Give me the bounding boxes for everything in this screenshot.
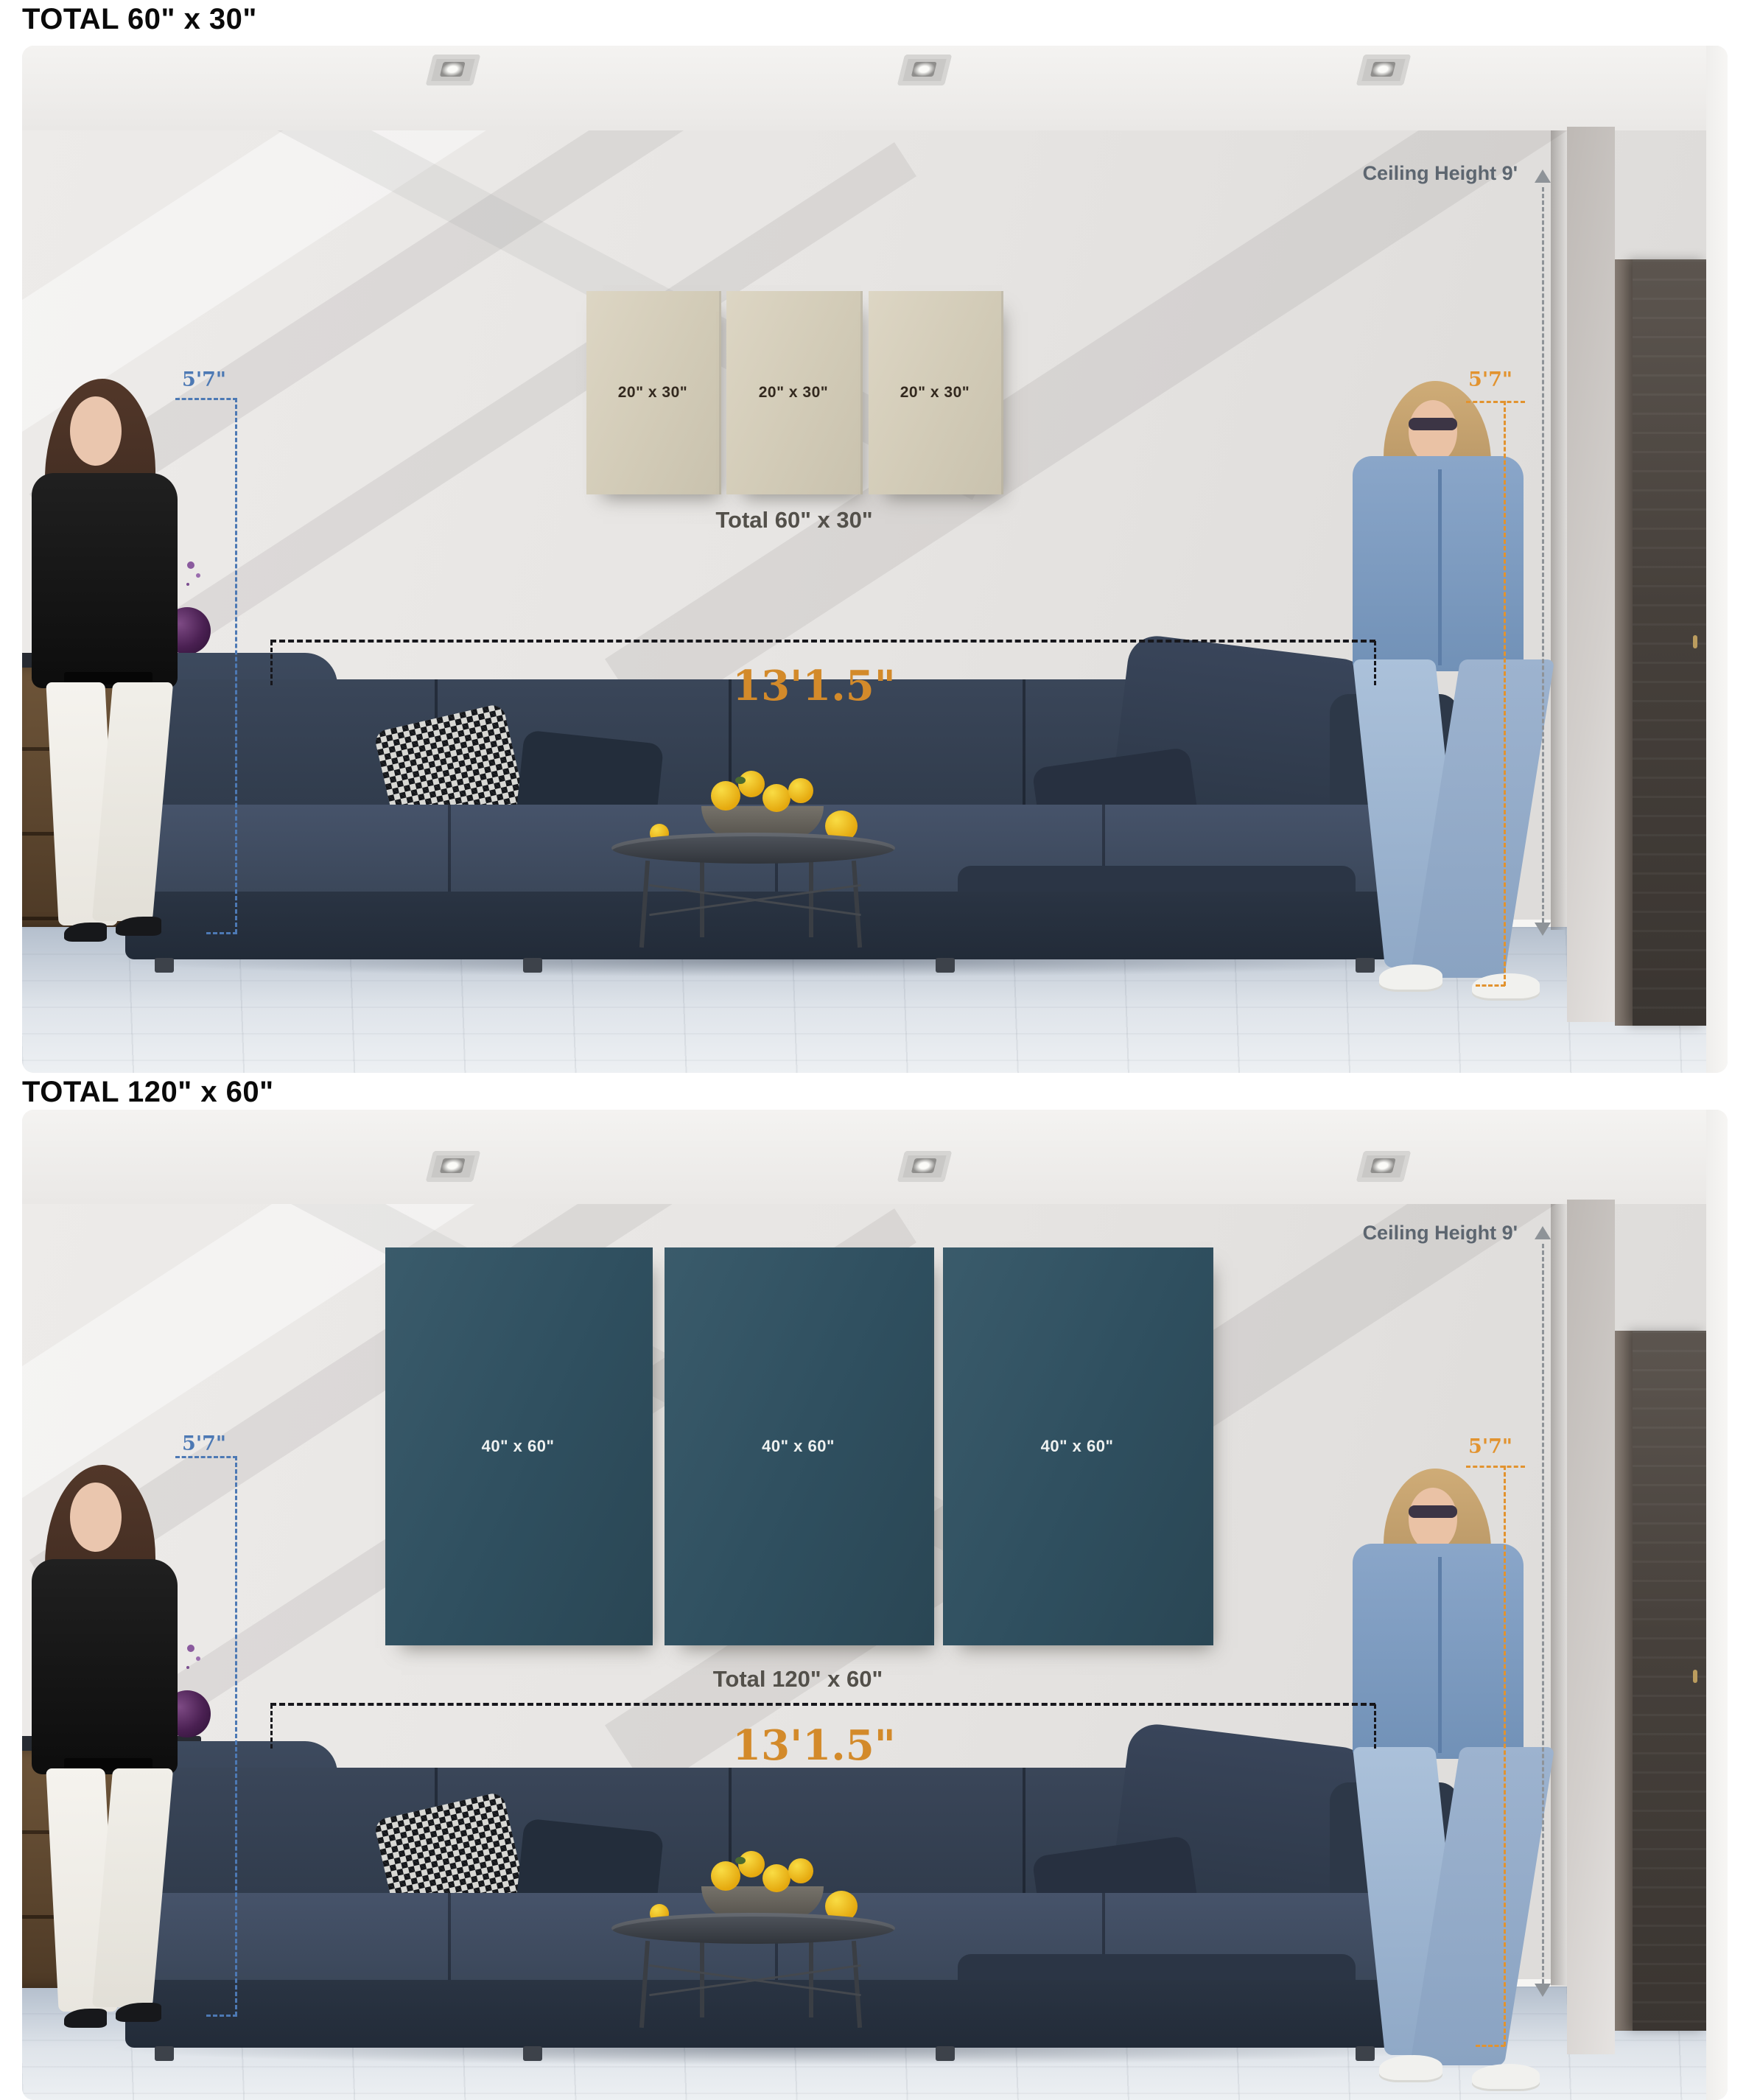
fruit	[738, 1851, 765, 1877]
left-person-shoe	[64, 923, 107, 942]
sofa-width-end-tick	[270, 1704, 273, 1749]
ceiling-height-line	[1542, 187, 1544, 923]
left-person	[26, 379, 195, 953]
sofa-width-line	[270, 1703, 1375, 1706]
canvas-panel: 40" x 60"	[665, 1247, 934, 1645]
hallway-outer-wall	[1706, 1110, 1728, 2100]
ceiling-light	[897, 1151, 952, 1182]
left-height-dash	[175, 398, 237, 400]
sofa-leg	[936, 958, 955, 973]
sofa-leg	[523, 958, 542, 973]
table-tray	[611, 833, 895, 864]
table-leg	[809, 1941, 813, 2017]
left-person-black-blouse	[32, 473, 178, 688]
ceiling-light	[426, 1151, 480, 1182]
ceiling-height-label: Ceiling Height 9'	[1326, 1222, 1518, 1245]
arrow-down-icon	[1535, 923, 1551, 936]
ceiling-light	[1356, 55, 1411, 85]
left-height-dash	[175, 1456, 237, 1458]
left-height-marker: 5'7"	[171, 1432, 237, 1455]
right-height-floor-tick	[1476, 2045, 1505, 2047]
sofa-leg	[523, 2046, 542, 2061]
table-leg	[639, 1941, 650, 2028]
table-leg	[852, 1941, 862, 2028]
canvas-panel: 20" x 30"	[726, 291, 863, 494]
right-person-denim-jacket	[1353, 1544, 1524, 1759]
fruit	[788, 1858, 813, 1883]
coffee-table	[611, 775, 895, 952]
table-leg	[639, 861, 650, 948]
left-person-face	[70, 396, 122, 466]
right-person	[1341, 381, 1554, 1000]
table-leg	[809, 861, 813, 937]
ceiling-height-label: Ceiling Height 9'	[1326, 162, 1518, 185]
table-leg	[700, 1941, 704, 2017]
arrow-up-icon	[1535, 1226, 1551, 1239]
section-title-60x30: TOTAL 60" x 30"	[22, 3, 257, 36]
table-leg	[700, 861, 704, 937]
sofa-width-label: 13'1.5"	[681, 662, 947, 710]
left-height-floor-tick	[206, 932, 237, 934]
ceiling	[22, 1110, 1728, 1205]
sunglasses	[1409, 1505, 1457, 1518]
ceiling-light	[897, 55, 952, 85]
ceiling-light	[426, 55, 480, 85]
fruit-leaf	[735, 1857, 746, 1864]
sunglasses	[1409, 418, 1457, 430]
arrow-down-icon	[1535, 1984, 1551, 1997]
left-height-line	[235, 398, 237, 934]
canvas-panel: 40" x 60"	[385, 1247, 653, 1645]
hallway-outer-wall	[1706, 46, 1728, 1073]
coffee-table	[611, 1855, 895, 2032]
right-height-line	[1504, 401, 1506, 986]
fruit	[738, 771, 765, 797]
ceiling	[22, 46, 1728, 131]
left-person	[26, 1465, 195, 2040]
canvas-size-label: 20" x 30"	[900, 384, 970, 402]
sofa-leg	[155, 2046, 174, 2061]
left-person-black-blouse	[32, 1559, 178, 1774]
canvas-panel: 20" x 30"	[869, 291, 1003, 494]
right-person-face	[1409, 400, 1457, 463]
right-height-marker: 5'7"	[1457, 368, 1524, 391]
table-leg	[852, 861, 862, 948]
canvas-panel: 40" x 60"	[943, 1247, 1213, 1645]
sofa-width-end-tick	[1374, 641, 1376, 685]
canvas-size-label: 40" x 60"	[482, 1437, 555, 1456]
room-scene-120x60: 40" x 60" 40" x 60" 40" x 60" Total 120"…	[22, 1110, 1728, 2100]
left-person-shoe	[116, 917, 161, 936]
table-tray	[611, 1913, 895, 1944]
fruit-leaf	[735, 777, 746, 784]
total-size-caption: Total 120" x 60"	[680, 1666, 916, 1693]
fruit	[711, 1861, 740, 1891]
sofa-width-label: 13'1.5"	[681, 1721, 947, 1770]
canvas-size-label: 20" x 30"	[618, 384, 687, 402]
arrow-up-icon	[1535, 169, 1551, 183]
right-person-sneaker	[1379, 965, 1442, 990]
left-height-floor-tick	[206, 2015, 237, 2017]
left-person-shoe	[116, 2003, 161, 2022]
total-size-caption: Total 60" x 30"	[676, 507, 912, 533]
right-person-sneaker	[1379, 2055, 1442, 2080]
right-height-marker: 5'7"	[1457, 1435, 1524, 1458]
right-person-denim-jacket	[1353, 456, 1524, 671]
sofa-width-end-tick	[270, 641, 273, 685]
right-height-floor-tick	[1476, 984, 1505, 987]
door-handle	[1693, 635, 1697, 648]
door-frame	[1615, 1331, 1633, 2031]
room-scene-60x30: 20" x 30" 20" x 30" 20" x 30" Total 60" …	[22, 46, 1728, 1073]
fruit	[788, 778, 813, 803]
ceiling-height-line	[1542, 1244, 1544, 1984]
canvas-size-label: 40" x 60"	[1041, 1437, 1114, 1456]
fruit	[762, 1864, 790, 1892]
right-height-dash	[1466, 401, 1525, 403]
canvas-panel: 20" x 30"	[586, 291, 721, 494]
canvas-size-label: 20" x 30"	[759, 384, 828, 402]
canvas-size-label: 40" x 60"	[762, 1437, 835, 1456]
hallway-wall	[1567, 1200, 1615, 2054]
right-person-sneaker	[1472, 2064, 1540, 2089]
right-person	[1341, 1469, 1554, 2091]
hallway-wall	[1567, 127, 1615, 1022]
sofa-leg	[936, 2046, 955, 2061]
sofa-width-line	[270, 640, 1375, 643]
left-height-marker: 5'7"	[171, 368, 237, 391]
fruit	[711, 781, 740, 811]
right-height-dash	[1466, 1466, 1525, 1468]
left-person-face	[70, 1483, 122, 1552]
left-person-shoe	[64, 2009, 107, 2028]
left-height-line	[235, 1456, 237, 2016]
right-person-face	[1409, 1488, 1457, 1551]
sofa-width-end-tick	[1374, 1704, 1376, 1749]
sofa-leg	[155, 958, 174, 973]
right-height-line	[1504, 1466, 1506, 2046]
section-title-120x60: TOTAL 120" x 60"	[22, 1076, 274, 1109]
door-frame	[1615, 259, 1633, 1026]
fruit	[762, 784, 790, 812]
door-handle	[1693, 1670, 1697, 1683]
ceiling-light	[1356, 1151, 1411, 1182]
